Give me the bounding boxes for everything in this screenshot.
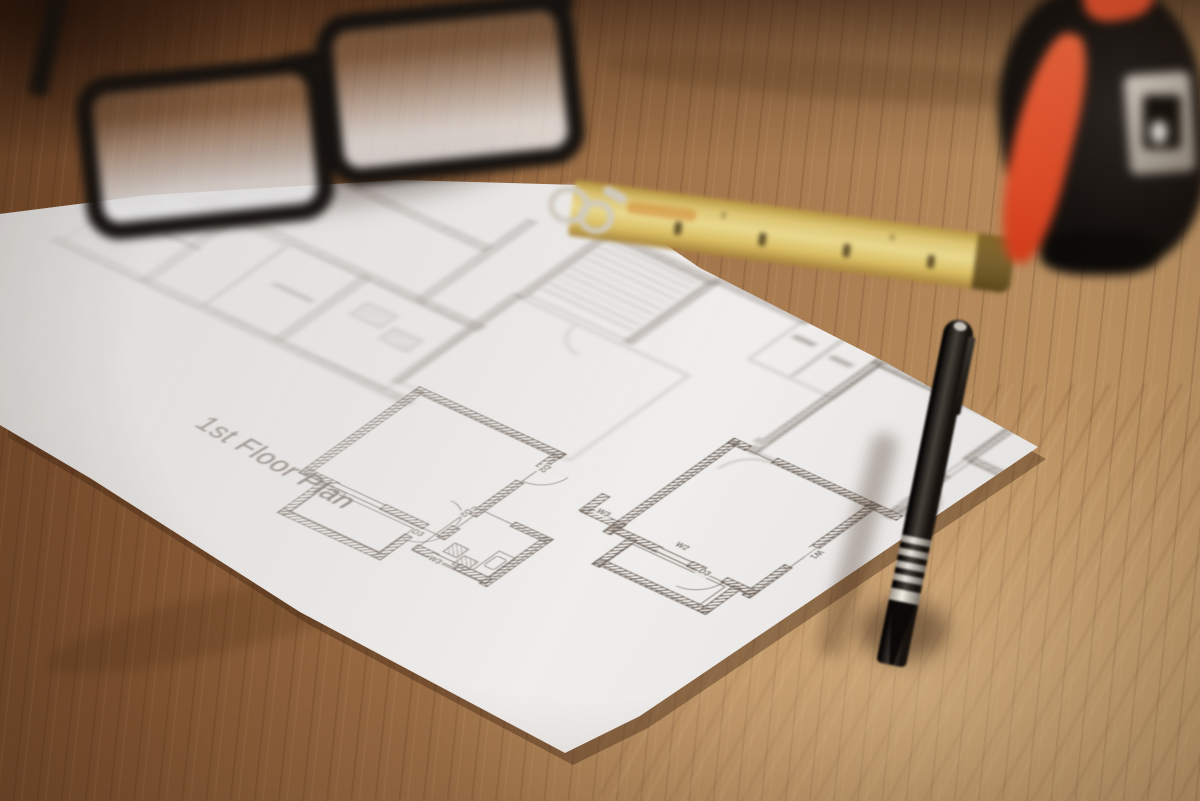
pen: [880, 312, 1020, 692]
ruler-mark: [674, 221, 683, 235]
pen-clip: [953, 336, 976, 416]
left-lens: [73, 54, 338, 243]
pen-barrel: [876, 317, 976, 668]
tape-base: [1040, 230, 1160, 275]
pen-ring: [901, 535, 932, 548]
right-lens: [312, 0, 588, 188]
ruler-mark: [842, 244, 851, 258]
pen-ring: [898, 547, 929, 560]
tape-clip-shine: [1151, 121, 1167, 143]
ruler-mark: [890, 234, 895, 241]
photo-scene: DINING 11'x10' BED ROOM 13'x13'6": [0, 0, 1200, 801]
pen-cap-highlight: [953, 321, 968, 332]
metal-ring: [578, 200, 614, 234]
ruler-mark: [758, 233, 767, 247]
pen-ring: [893, 573, 924, 586]
tape-measure: [985, 0, 1200, 285]
pen-ring: [895, 560, 926, 573]
ruler-mark: [721, 211, 726, 218]
ruler-stain: [626, 201, 697, 222]
ruler-mark: [927, 255, 936, 269]
left-temple-arm: [27, 0, 74, 97]
pen-tip-cone: [876, 599, 918, 668]
wall: [415, 219, 537, 304]
